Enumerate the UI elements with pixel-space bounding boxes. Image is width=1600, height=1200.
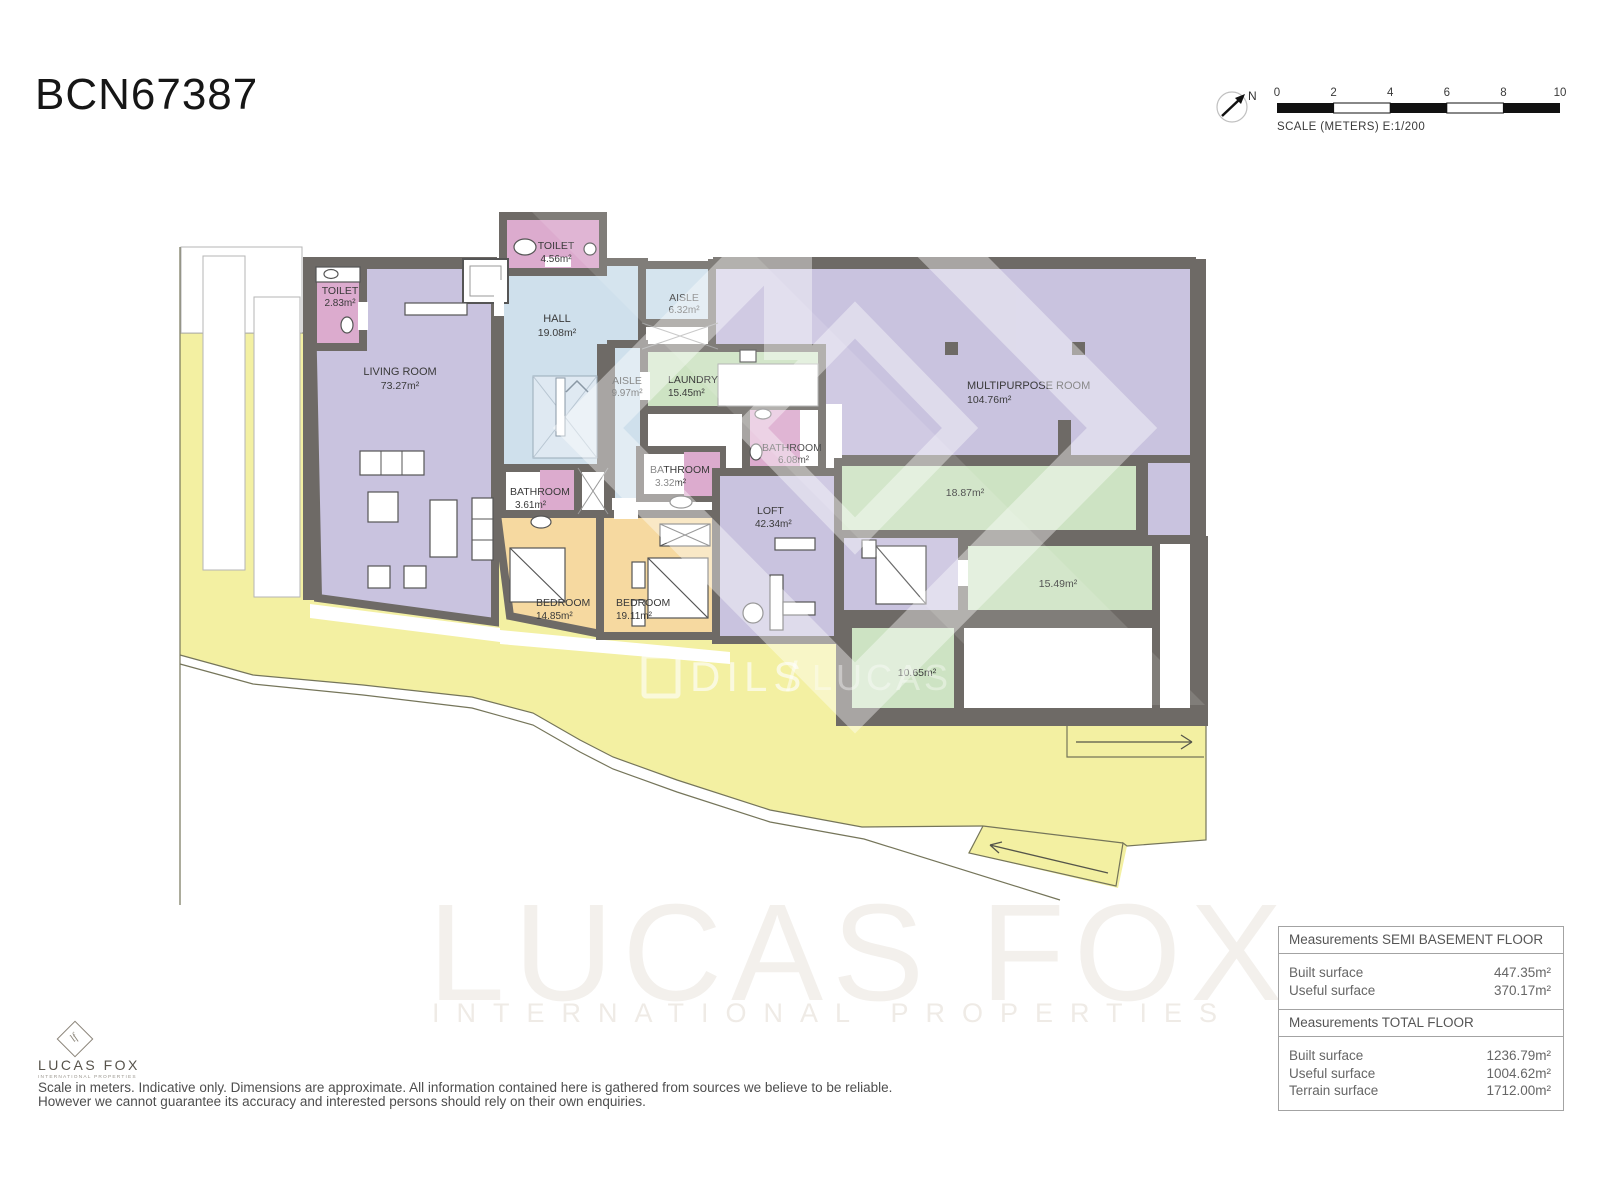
table-row: Useful surface 370.17m² xyxy=(1289,982,1551,1000)
table-row: Useful surface 1004.62m² xyxy=(1289,1065,1551,1083)
svg-text:4.56m²: 4.56m² xyxy=(540,254,572,265)
svg-text:4: 4 xyxy=(1387,87,1394,99)
measurements-total-rows: Built surface 1236.79m² Useful surface 1… xyxy=(1279,1037,1563,1110)
measurements-table: Measurements SEMI BASEMENT FLOOR Built s… xyxy=(1278,926,1564,1111)
room-label-bedroom-right: BEDROOM xyxy=(616,597,670,609)
svg-text:73.27m²: 73.27m² xyxy=(381,380,420,392)
sink-fixture xyxy=(324,270,338,279)
toilet-fixture xyxy=(514,239,536,255)
disclaimer: Scale in meters. Indicative only. Dimens… xyxy=(38,1081,938,1109)
svg-text:15.45m²: 15.45m² xyxy=(668,388,705,399)
svg-text:14.85m²: 14.85m² xyxy=(536,611,573,622)
svg-text:2: 2 xyxy=(1330,87,1336,99)
svg-text:2.83m²: 2.83m² xyxy=(324,298,356,309)
svg-text:104.76m²: 104.76m² xyxy=(967,394,1012,406)
sink-fixture xyxy=(531,516,551,528)
table-row: Built surface 447.35m² xyxy=(1289,964,1551,982)
north-arrow: N xyxy=(1217,89,1257,122)
svg-text:19.11m²: 19.11m² xyxy=(616,611,653,622)
measurements-total-title: Measurements TOTAL FLOOR xyxy=(1279,1009,1563,1037)
light-well-strip xyxy=(203,256,245,570)
svg-text:42.34m²: 42.34m² xyxy=(755,519,792,530)
scale-caption: SCALE (METERS) E:1/200 xyxy=(1277,121,1425,133)
room-label-toilet-left: TOILET xyxy=(322,285,359,297)
svg-text:6: 6 xyxy=(1444,87,1450,99)
light-well-strip xyxy=(254,297,300,597)
svg-text:LUCAS FOX: LUCAS FOX xyxy=(812,657,1052,698)
pillar xyxy=(945,342,958,355)
north-label: N xyxy=(1248,89,1257,103)
svg-text:8: 8 xyxy=(1500,87,1506,99)
room-label-bedroom-left: BEDROOM xyxy=(536,597,590,609)
brand-watermark-subtitle: INTERNATIONAL PROPERTIES xyxy=(432,998,1234,1029)
disclaimer-line2: However we cannot guarantee its accuracy… xyxy=(38,1095,938,1109)
measurements-semi-basement-rows: Built surface 447.35m² Useful surface 37… xyxy=(1279,954,1563,1009)
svg-text:3.61m²: 3.61m² xyxy=(515,500,547,511)
room-label-hall: HALL xyxy=(543,313,571,325)
room-label-living: LIVING ROOM xyxy=(363,366,436,378)
svg-text:19.08m²: 19.08m² xyxy=(538,327,577,339)
svg-text:10: 10 xyxy=(1554,87,1567,99)
measurements-semi-basement-title: Measurements SEMI BASEMENT FLOOR xyxy=(1279,927,1563,954)
table-row: Terrain surface 1712.00m² xyxy=(1289,1082,1551,1100)
disclaimer-line1: Scale in meters. Indicative only. Dimens… xyxy=(38,1081,938,1095)
floor-plan-page: BCN67387 xyxy=(0,0,1600,1200)
logo-brand-text: LUCAS FOX xyxy=(38,1057,140,1073)
svg-text:/: / xyxy=(786,653,798,700)
sofa xyxy=(360,451,424,475)
scale-bar: 0 2 4 6 8 10 SCALE (METERS) E:1/200 xyxy=(1274,87,1567,133)
room-label-loft: LOFT xyxy=(757,505,784,517)
svg-text:0: 0 xyxy=(1274,87,1280,99)
toilet-fixture xyxy=(341,317,353,333)
dils-watermark: DILS / LUCAS FOX xyxy=(644,653,1052,700)
table-row: Built surface 1236.79m² xyxy=(1289,1047,1551,1065)
room-label-bathroom-bedroom: BATHROOM xyxy=(510,486,570,498)
